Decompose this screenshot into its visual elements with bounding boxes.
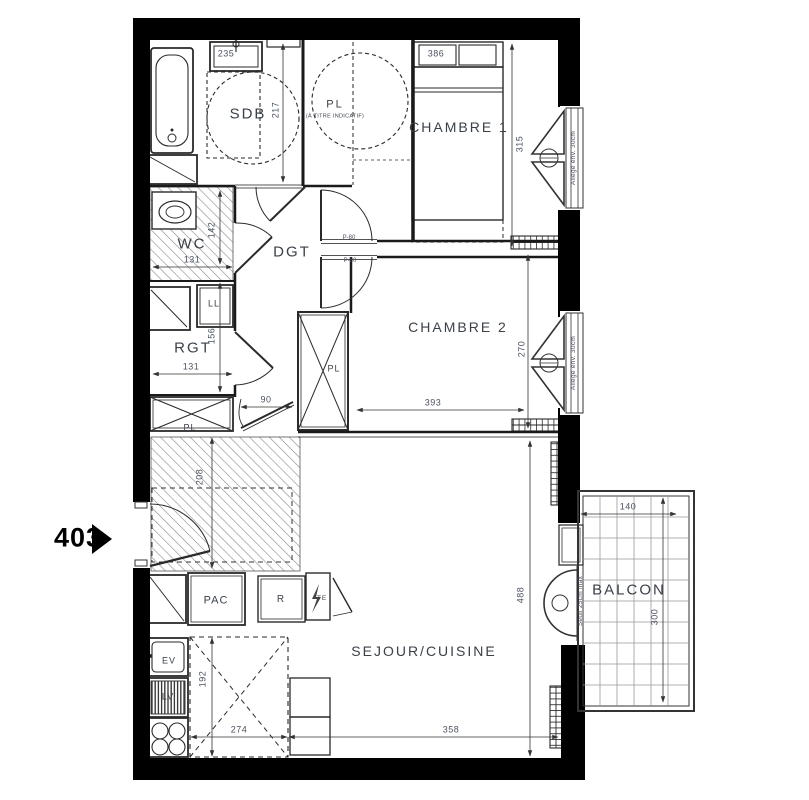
room-label-chambre2: CHAMBRE 2 [408, 320, 508, 334]
annotation-window2-sill: Allège env. 30cm [571, 336, 578, 390]
room-label-sejour: SEJOUR/CUISINE [351, 644, 496, 658]
unit-number: 403 [54, 523, 102, 554]
dim-entry-depth: 208 [196, 469, 205, 486]
entry-door-frame [135, 502, 147, 566]
door-label-p80-a: P-80 [343, 235, 356, 241]
dim-ch1-height: 315 [516, 136, 525, 153]
annotation-window1-sill: Allège env. 30cm [571, 131, 578, 185]
dim-sejour-height: 488 [517, 587, 526, 604]
room-label-chambre1: CHAMBRE 1 [409, 120, 509, 134]
dim-kitchen-depth: 192 [199, 671, 208, 688]
balcony-drawing [578, 491, 694, 711]
room-label-balcon: BALCON [592, 583, 666, 598]
fixture-label-ll: LL [208, 300, 220, 309]
fixture-label-te: TE [317, 596, 327, 603]
dim-rgt-depth: 156 [208, 328, 217, 345]
dim-balcon-depth: 300 [651, 609, 660, 626]
door-label-p80-b: P-80 [344, 258, 357, 264]
dim-door: 90 [260, 396, 271, 405]
fixture-label-fridge: R [277, 595, 285, 605]
room-label-sdb: SDB [230, 107, 267, 122]
dim-wc-width: 131 [184, 256, 201, 265]
room-label-wc: WC [178, 237, 207, 252]
annotation-threshold: Seuil 25cm max [578, 576, 585, 626]
dim-rgt-width: 131 [183, 363, 200, 372]
plan-drawing [0, 0, 809, 800]
floor-plan: SDB PL (À TITRE INDICATIF) CHAMBRE 1 WC … [0, 0, 809, 800]
room-label-dgt: DGT [273, 245, 311, 260]
dim-ch2-width: 393 [425, 399, 442, 408]
dim-ch2-height: 270 [518, 341, 527, 358]
fixture-label-ev: EV [162, 657, 176, 666]
dim-sdb-depth: 217 [272, 102, 281, 119]
dim-balcon-width: 140 [620, 503, 637, 512]
room-label-pl: PL [326, 100, 343, 111]
dim-sejour-width: 358 [443, 726, 460, 735]
fixture-label-pl-mid: PL [327, 365, 340, 374]
dim-wc-depth: 142 [208, 222, 217, 239]
exterior-walls [133, 18, 585, 780]
dim-kitchen-width: 274 [231, 726, 248, 735]
fixture-label-pl-entry: PL [183, 424, 196, 433]
fixture-label-pac: PAC [204, 596, 229, 607]
room-label-pl-note: (À TITRE INDICATIF) [306, 114, 364, 120]
dim-sink: 235 [218, 50, 235, 59]
dim-bed: 386 [428, 50, 445, 59]
fixture-label-lv: LV [162, 693, 174, 702]
